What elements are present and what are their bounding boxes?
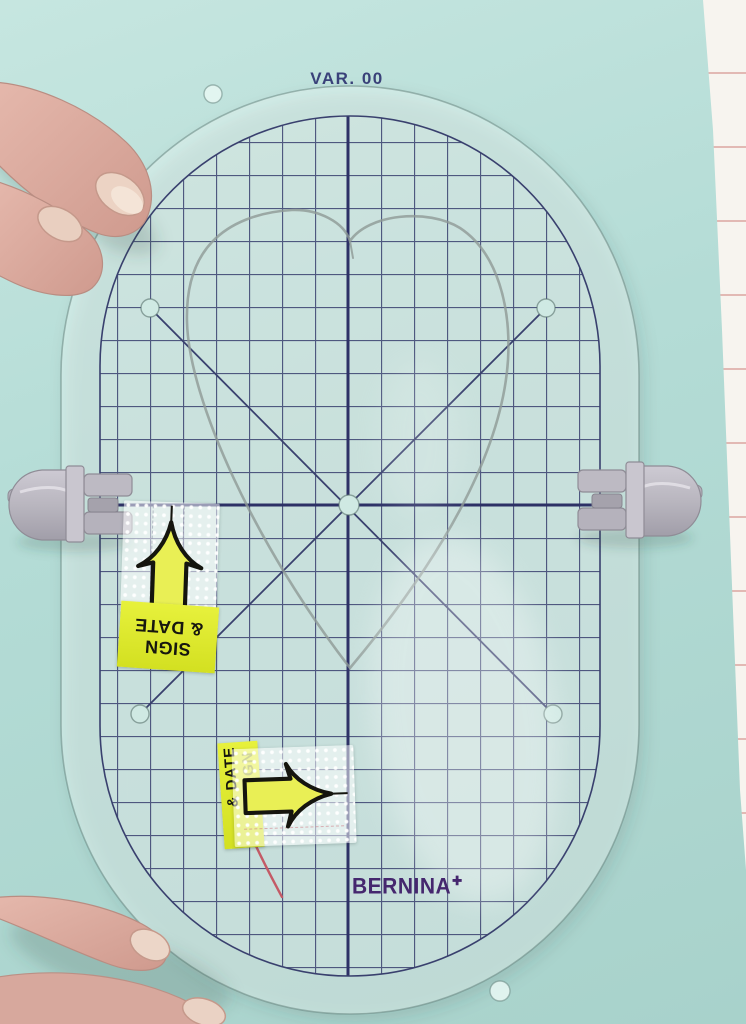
scene-artwork bbox=[0, 0, 746, 1024]
left-clip bbox=[8, 466, 133, 552]
right-arrow-icon bbox=[240, 755, 353, 835]
lower-sticker-tape bbox=[231, 745, 356, 847]
template-notch-bottom bbox=[490, 981, 510, 1001]
photo-bernina-hoop-template: SIGN & DATE & DATE SIGN VAR. 00 BERNINA✚ bbox=[0, 0, 746, 1024]
template-notch-top bbox=[204, 85, 222, 103]
upper-sign-date-label: SIGN & DATE bbox=[117, 601, 219, 674]
upper-sticker-tape bbox=[120, 500, 220, 615]
bernina-plus-icon: ✚ bbox=[452, 873, 463, 888]
up-arrow-icon bbox=[127, 503, 213, 614]
right-clip bbox=[577, 462, 702, 548]
sign-date-text: SIGN & DATE bbox=[132, 614, 203, 661]
bernina-logo: BERNINA✚ bbox=[352, 873, 512, 899]
template-variant-label: VAR. 00 bbox=[277, 69, 417, 89]
plastic-glare-small bbox=[378, 360, 462, 520]
bernina-logo-text: BERNINA bbox=[352, 874, 451, 898]
